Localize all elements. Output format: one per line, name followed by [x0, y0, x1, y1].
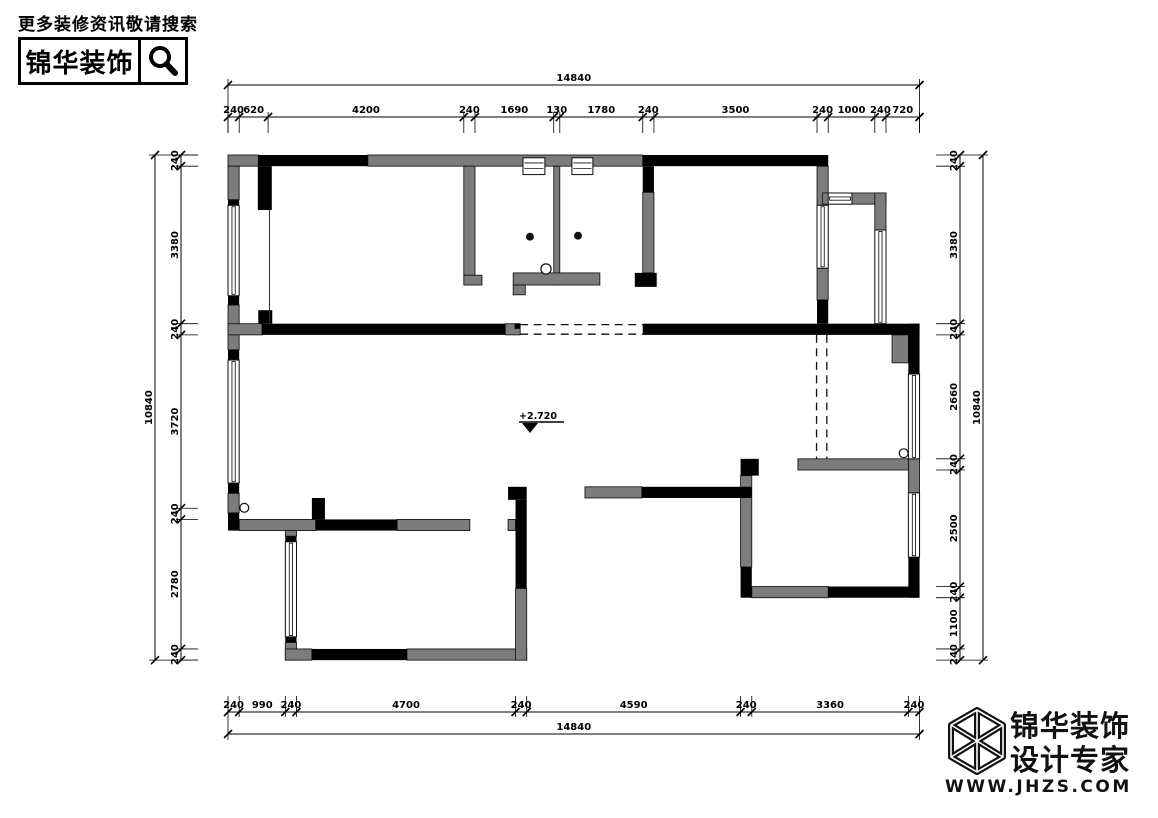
dim-label: 240: [949, 582, 960, 603]
window-symbol: [228, 205, 239, 295]
dim-label: 720: [892, 105, 913, 116]
brand-logo: 锦华装饰: [18, 37, 188, 85]
flue-vent-symbol: [523, 158, 545, 175]
dim-label: 240: [638, 105, 659, 116]
brand-logo-text: 锦华装饰: [21, 40, 138, 82]
level-label: +2.720: [519, 411, 557, 422]
dim-label: 10840: [972, 390, 983, 425]
dim-label: 240: [459, 105, 480, 116]
brand-cube-icon: [948, 707, 1006, 781]
window-symbol: [908, 493, 919, 557]
dim-label: 2500: [949, 514, 960, 542]
dim-label: 240: [511, 700, 532, 711]
dim-label: 240: [280, 700, 301, 711]
dim-label: 240: [170, 503, 181, 524]
dim-label: 990: [252, 700, 273, 711]
window-symbol: [817, 205, 828, 268]
dim-label: 4700: [392, 700, 420, 711]
level-triangle-icon: [522, 423, 538, 433]
brand-subtitle: 设计专家: [1010, 737, 1130, 779]
dim-label: 3360: [816, 700, 844, 711]
dim-label: 240: [223, 700, 244, 711]
window-symbol: [828, 193, 852, 204]
dim-label: 240: [736, 700, 757, 711]
dim-label: 1690: [500, 105, 528, 116]
windows-layer: [228, 158, 920, 637]
dim-label: 240: [223, 105, 244, 116]
dim-label: 130: [546, 105, 567, 116]
dim-label: 2660: [949, 383, 960, 411]
dim-label: 14840: [556, 73, 591, 84]
window-symbol: [228, 360, 239, 483]
dim-label: 240: [812, 105, 833, 116]
dim-label: 240: [949, 319, 960, 340]
dim-label: 240: [949, 454, 960, 475]
dim-label: 4590: [620, 700, 648, 711]
brand-website: WWW.JHZS.COM: [945, 777, 1132, 797]
floor-drain-dot: [574, 232, 582, 240]
dim-label: 240: [170, 319, 181, 340]
dim-label: 3380: [170, 231, 181, 259]
dim-label: 3500: [722, 105, 750, 116]
dim-label: 240: [870, 105, 891, 116]
window-symbol: [285, 542, 296, 637]
floor-plan-drawing: +2.720 240620420024016901301780240350024…: [0, 0, 1158, 818]
drain-circle: [541, 264, 551, 274]
walls-layer: [228, 155, 920, 660]
drain-circle: [899, 449, 908, 458]
search-tagline: 更多装修资讯敬请搜索: [18, 10, 198, 35]
dim-label: 3380: [949, 231, 960, 259]
floor-plan-page: 更多装修资讯敬请搜索 锦华装饰: [0, 0, 1158, 818]
dim-label: 240: [170, 644, 181, 665]
dim-label: 620: [243, 105, 264, 116]
dim-label: 240: [949, 150, 960, 171]
dim-label: 10840: [144, 390, 155, 425]
floor-drain-dot: [526, 233, 534, 241]
dim-label: 1000: [838, 105, 866, 116]
window-symbol: [908, 374, 919, 459]
drain-circle: [240, 503, 249, 512]
dim-label: 240: [170, 150, 181, 171]
dim-label: 14840: [556, 722, 591, 733]
dim-label: 240: [904, 700, 925, 711]
dim-label: 1100: [949, 609, 960, 637]
dim-label: 240: [949, 644, 960, 665]
dim-label: 4200: [352, 105, 380, 116]
search-icon: [141, 40, 185, 82]
dim-label: 2780: [170, 570, 181, 598]
dim-label: 1780: [587, 105, 615, 116]
window-symbol: [875, 230, 886, 324]
removed-wall-dashed-lines: [520, 325, 827, 459]
flue-vent-symbol: [572, 158, 593, 175]
dim-label: 3720: [170, 408, 181, 436]
level-marker: +2.720: [519, 411, 564, 433]
